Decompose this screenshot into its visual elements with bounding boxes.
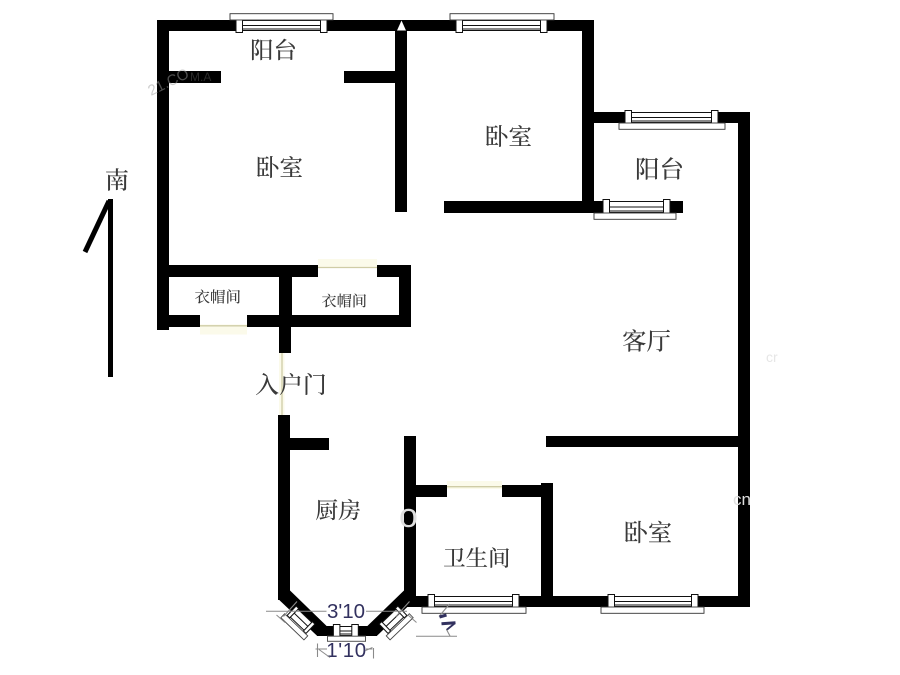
svg-text:o: o <box>399 497 418 535</box>
svg-text:cr: cr <box>766 349 778 365</box>
svg-text:3'10: 3'10 <box>327 600 365 623</box>
svg-text:M.A: M.A <box>190 70 211 84</box>
svg-text:cn: cn <box>733 490 751 509</box>
svg-text:1'10: 1'10 <box>326 639 367 662</box>
